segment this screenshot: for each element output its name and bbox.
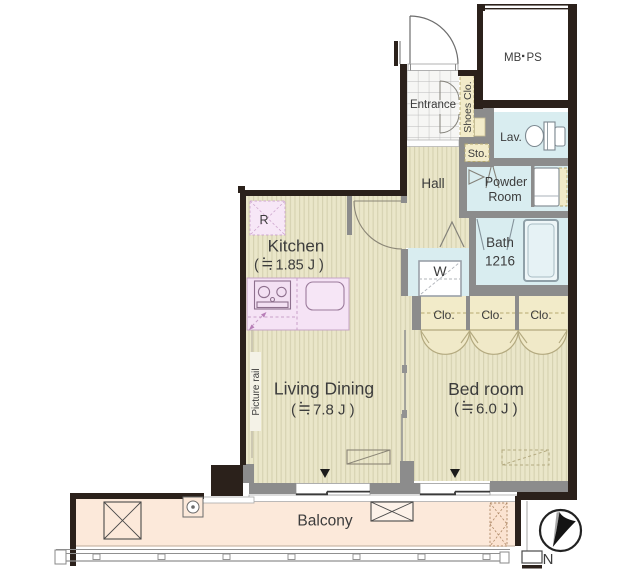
svg-text:Powder: Powder — [485, 175, 527, 189]
svg-text:(: ( — [454, 401, 459, 418]
svg-text:Bed room: Bed room — [448, 379, 524, 399]
svg-text:7.8 J ): 7.8 J ) — [313, 402, 355, 419]
svg-text:Room: Room — [488, 190, 521, 204]
svg-text:1.85 J ): 1.85 J ) — [276, 258, 324, 274]
svg-text:Lav.: Lav. — [500, 130, 522, 144]
svg-text:Hall: Hall — [421, 176, 444, 191]
svg-text:Clo.: Clo. — [481, 308, 502, 322]
svg-text:PS: PS — [527, 52, 543, 64]
svg-text:Balcony: Balcony — [297, 513, 352, 530]
svg-text:N: N — [543, 551, 554, 568]
svg-text:R: R — [259, 213, 268, 227]
svg-text:Bath: Bath — [486, 235, 514, 250]
svg-text:(: ( — [291, 402, 296, 419]
svg-text:Entrance: Entrance — [410, 99, 456, 111]
svg-text:Kitchen: Kitchen — [268, 237, 325, 256]
svg-text:Sto.: Sto. — [468, 148, 488, 160]
svg-text:Clo.: Clo. — [530, 308, 551, 322]
svg-text:W: W — [433, 263, 447, 279]
svg-text:Picture rail: Picture rail — [251, 368, 262, 415]
svg-text:6.0 J ): 6.0 J ) — [476, 401, 518, 418]
svg-text:(: ( — [254, 258, 259, 274]
svg-text:Living Dining: Living Dining — [274, 379, 374, 399]
svg-text:Clo.: Clo. — [433, 308, 454, 322]
svg-text:MB: MB — [504, 52, 522, 64]
svg-text:1216: 1216 — [485, 254, 515, 269]
svg-text:Shoes Clo.: Shoes Clo. — [462, 81, 474, 132]
